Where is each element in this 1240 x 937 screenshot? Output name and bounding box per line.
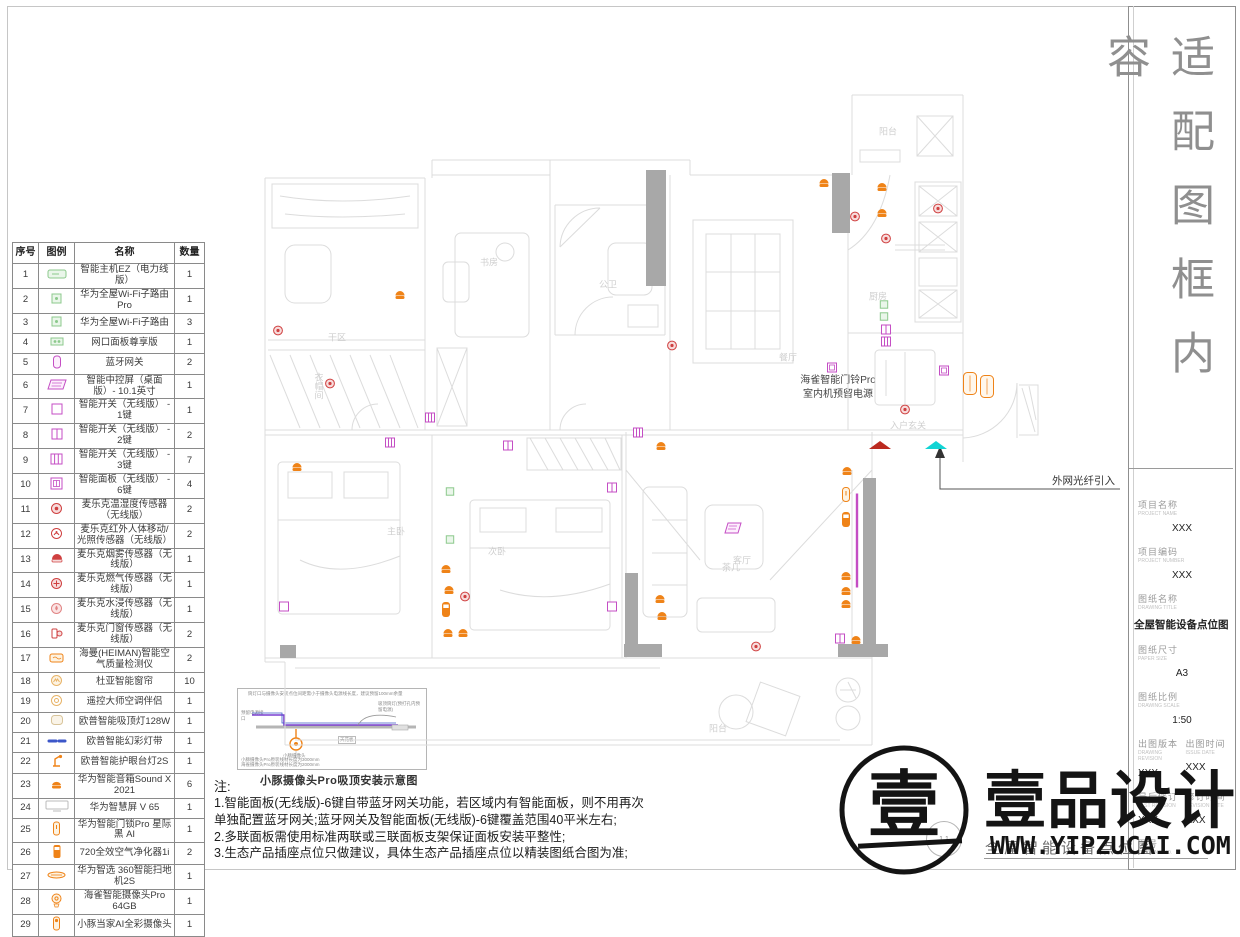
sensor-marker-icon bbox=[325, 376, 336, 394]
device-markers-layer bbox=[0, 0, 1240, 877]
switch-marker-icon bbox=[827, 360, 838, 378]
cam2-legend-icon bbox=[39, 914, 75, 936]
legend-qty: 1 bbox=[175, 890, 205, 915]
control-screen-marker-icon bbox=[724, 521, 742, 539]
threshold-marker-icon bbox=[924, 437, 948, 455]
cam-legend-icon bbox=[39, 890, 75, 915]
speaker-marker-icon bbox=[394, 287, 406, 305]
cabinet-device-marker-icon bbox=[963, 372, 978, 401]
speaker-marker-icon bbox=[818, 175, 830, 193]
speaker-marker-icon bbox=[443, 582, 455, 600]
threshold-marker-icon bbox=[868, 437, 892, 455]
purifier-marker-icon bbox=[841, 511, 852, 533]
sensor-marker-icon bbox=[881, 231, 892, 249]
sensor-marker-icon bbox=[460, 589, 471, 607]
sensor-marker-icon bbox=[751, 639, 762, 657]
curtain-track-marker bbox=[855, 494, 859, 593]
switch-marker-icon bbox=[881, 334, 892, 352]
speaker-marker-icon bbox=[654, 591, 666, 609]
legend-no: 29 bbox=[13, 914, 39, 936]
sensor-marker-icon bbox=[850, 209, 861, 227]
switch-marker-icon bbox=[607, 599, 618, 617]
switch-marker-icon bbox=[633, 425, 644, 443]
sensor-marker-icon bbox=[667, 338, 678, 356]
switch-marker-icon bbox=[279, 599, 290, 617]
switch-marker-icon bbox=[939, 363, 950, 381]
speaker-marker-icon bbox=[841, 463, 853, 481]
switch-marker-icon bbox=[835, 631, 846, 649]
sensor-marker-icon bbox=[933, 201, 944, 219]
speaker-marker-icon bbox=[291, 459, 303, 477]
legend-name: 小豚当家AI全彩摄像头 bbox=[75, 914, 175, 936]
legend-name: 海雀智能摄像头Pro 64GB bbox=[75, 890, 175, 915]
speaker-marker-icon bbox=[457, 625, 469, 643]
sensor-marker-icon bbox=[273, 323, 284, 341]
speaker-marker-icon bbox=[440, 561, 452, 579]
door-lock-marker-icon bbox=[841, 487, 851, 508]
switch-marker-icon bbox=[607, 480, 618, 498]
sensor-marker-icon bbox=[900, 402, 911, 420]
speaker-marker-icon bbox=[655, 438, 667, 456]
legend-qty: 1 bbox=[175, 914, 205, 936]
network-marker-icon bbox=[446, 531, 455, 549]
speaker-marker-icon bbox=[840, 596, 852, 614]
network-marker-icon bbox=[446, 483, 455, 501]
switch-marker-icon bbox=[425, 410, 436, 428]
speaker-marker-icon bbox=[850, 632, 862, 650]
purifier-marker-icon bbox=[441, 601, 452, 623]
switch-marker-icon bbox=[503, 438, 514, 456]
legend-no: 28 bbox=[13, 890, 39, 915]
switch-marker-icon bbox=[385, 435, 396, 453]
legend-row: 28海雀智能摄像头Pro 64GB1 bbox=[13, 890, 205, 915]
speaker-marker-icon bbox=[876, 179, 888, 197]
speaker-marker-icon bbox=[442, 625, 454, 643]
speaker-marker-icon bbox=[656, 608, 668, 626]
cabinet-device-marker-icon bbox=[980, 375, 995, 404]
speaker-marker-icon bbox=[876, 205, 888, 223]
legend-row: 29小豚当家AI全彩摄像头1 bbox=[13, 914, 205, 936]
